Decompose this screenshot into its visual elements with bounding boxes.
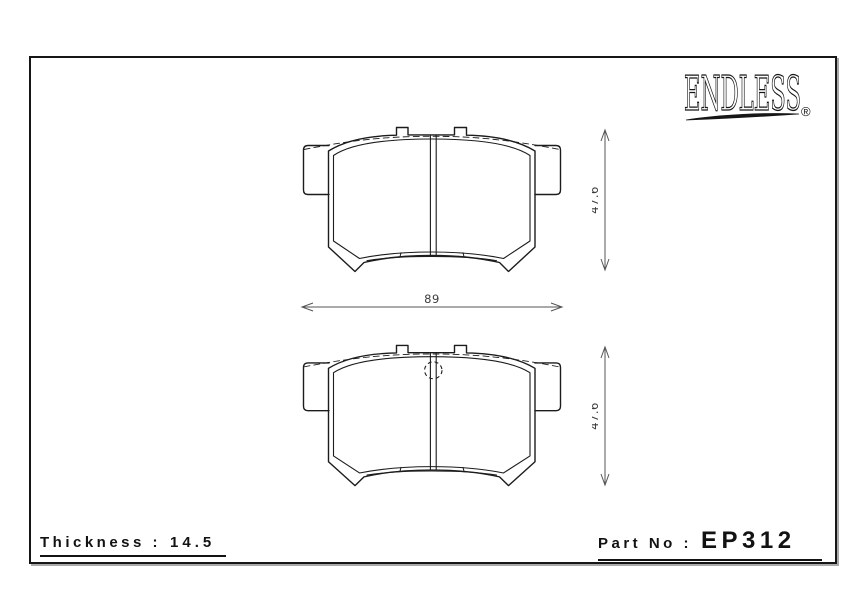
dimension-top-pad-height: 47.6: [592, 128, 620, 272]
thickness-value: 14.5: [170, 534, 215, 551]
dimension-pad-width: 89: [300, 293, 564, 315]
part-no-label: Part No :: [598, 535, 692, 552]
registered-trademark-icon: ®: [801, 104, 811, 119]
brake-pad-bottom-view: [301, 344, 563, 490]
thickness-field: Thickness : 14.5: [40, 534, 226, 557]
part-no-field: Part No : EP312: [598, 527, 822, 561]
hidden-hole-circle: [425, 362, 442, 379]
dimension-label-width: 89: [424, 293, 440, 306]
thickness-label: Thickness :: [40, 534, 161, 551]
dimension-label-top-height: 47.6: [592, 186, 601, 214]
brake-pad-top-view: [301, 126, 563, 276]
endless-logo: ENDLESS ®: [682, 66, 824, 128]
part-no-value: EP312: [701, 527, 796, 555]
dimension-bottom-pad-height: 47.6: [592, 345, 620, 487]
dimension-label-bottom-height: 47.6: [592, 402, 601, 430]
